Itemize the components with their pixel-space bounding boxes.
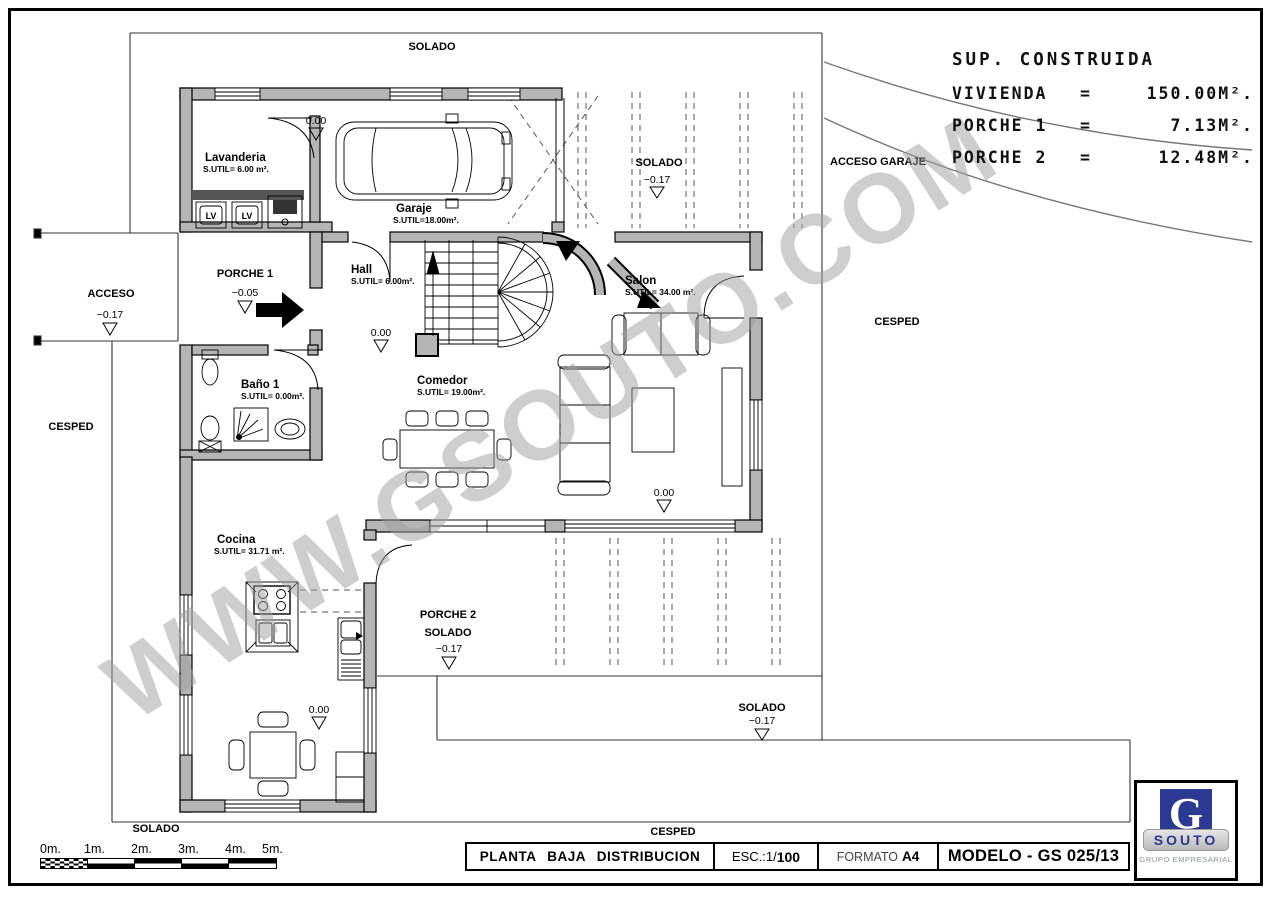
room-label-bano: Baño 1 bbox=[241, 379, 280, 391]
summary-row-porche2: PORCHE 2 = 12.48M². bbox=[952, 148, 1254, 167]
bathroom-fixtures bbox=[199, 350, 305, 452]
label-porche2-solado: SOLADO bbox=[424, 627, 472, 639]
level-ramp: −0.17 bbox=[644, 174, 671, 186]
summary-title: SUP. CONSTRUIDA bbox=[952, 50, 1254, 70]
level-porche1: −0.05 bbox=[232, 287, 259, 299]
summary-value: 12.48M². bbox=[1106, 148, 1254, 167]
label-washer-1: LV bbox=[206, 211, 217, 221]
summary-value: 7.13M². bbox=[1106, 116, 1254, 135]
summary-row-vivienda: VIVIENDA = 150.00M². bbox=[952, 84, 1254, 103]
room-label-comedor: Comedor bbox=[417, 375, 468, 387]
area-label-salon: S.UTIL= 34.00 m². bbox=[625, 287, 696, 297]
scale-segment bbox=[182, 859, 229, 868]
doors bbox=[268, 118, 744, 583]
level-acceso: −0.17 bbox=[97, 309, 124, 321]
scale-tick: 3m. bbox=[178, 842, 199, 856]
label-solado-top: SOLADO bbox=[408, 41, 456, 53]
level-cocina: 0.00 bbox=[309, 704, 330, 716]
format-cell: FORMATOA4 bbox=[819, 844, 939, 869]
label-cesped-right: CESPED bbox=[874, 316, 919, 328]
scale-value: 100 bbox=[777, 849, 800, 865]
room-label-hall: Hall bbox=[351, 264, 372, 276]
equals-sign: = bbox=[1080, 116, 1106, 135]
area-label-comedor: S.UTIL= 19.00m². bbox=[417, 387, 485, 397]
level-solado-br: −0.17 bbox=[749, 715, 776, 727]
company-logo: G SOUTO GRUPO EMPRESARIAL bbox=[1134, 780, 1238, 881]
area-label-lavanderia: S.UTIL= 6.00 m². bbox=[203, 164, 269, 174]
area-summary: SUP. CONSTRUIDA VIVIENDA = 150.00M². POR… bbox=[952, 50, 1254, 180]
scale-bar: 0m. 1m. 2m. 3m. 4m. 5m. bbox=[40, 842, 276, 868]
label-solado-ramp: SOLADO bbox=[635, 157, 683, 169]
title-block: PLANTA BAJA DISTRIBUCION ESC.:1/100 FORM… bbox=[465, 842, 1130, 871]
summary-row-porche1: PORCHE 1 = 7.13M². bbox=[952, 116, 1254, 135]
label-porche2: PORCHE 2 bbox=[420, 609, 476, 621]
format-label: FORMATO bbox=[837, 850, 898, 864]
summary-label: PORCHE 2 bbox=[952, 148, 1080, 167]
stairs bbox=[416, 237, 553, 356]
scale-segment bbox=[135, 859, 182, 868]
car bbox=[336, 114, 512, 208]
scale-tick: 4m. bbox=[225, 842, 246, 856]
scale-label: ESC.:1/ bbox=[732, 849, 777, 864]
drawing-title: PLANTA BAJA DISTRIBUCION bbox=[467, 844, 715, 869]
area-label-cocina: S.UTIL= 31.71 m². bbox=[214, 546, 285, 556]
room-label-cocina: Cocina bbox=[217, 534, 256, 546]
logo-name: SOUTO bbox=[1143, 829, 1229, 851]
scale-tick: 2m. bbox=[131, 842, 152, 856]
label-cesped-bottom: CESPED bbox=[650, 826, 695, 838]
label-solado-left: SOLADO bbox=[132, 823, 180, 835]
summary-label: VIVIENDA bbox=[952, 84, 1080, 103]
scale-segment bbox=[88, 859, 135, 868]
drawing-sheet: SOLADO Lavanderia S.UTIL= 6.00 m². Garaj… bbox=[0, 0, 1273, 900]
scale-tick: 0m. bbox=[40, 842, 61, 856]
living-furniture bbox=[558, 313, 742, 495]
entrance-arrow-icon bbox=[256, 292, 304, 328]
area-label-hall: S.UTIL= 6.00m². bbox=[351, 276, 415, 286]
room-label-lavanderia: Lavanderia bbox=[205, 152, 266, 164]
label-acceso-garaje: ACCESO GARAJE bbox=[830, 156, 926, 168]
kitchen-fixtures bbox=[229, 582, 364, 802]
area-label-garaje: S.UTIL=18.00m². bbox=[393, 215, 459, 225]
label-washer-2: LV bbox=[242, 211, 253, 221]
scale-segment bbox=[41, 859, 88, 868]
room-label-salon: Salon bbox=[625, 275, 656, 287]
garage-door bbox=[556, 98, 564, 222]
scale-tick: 5m. bbox=[262, 842, 283, 856]
equals-sign: = bbox=[1080, 84, 1106, 103]
scale-bar-segments bbox=[40, 858, 277, 869]
label-cesped-left: CESPED bbox=[48, 421, 93, 433]
label-acceso: ACCESO bbox=[87, 288, 135, 300]
level-garaje: 0.00 bbox=[306, 115, 327, 127]
scale-segment bbox=[229, 859, 276, 868]
level-hall: 0.00 bbox=[371, 327, 392, 339]
level-salon: 0.00 bbox=[654, 487, 675, 499]
logo-tagline: GRUPO EMPRESARIAL bbox=[1137, 855, 1235, 864]
curved-stair-wall bbox=[543, 238, 661, 308]
dining-furniture bbox=[383, 411, 511, 487]
label-solado-br: SOLADO bbox=[738, 702, 786, 714]
room-label-garaje: Garaje bbox=[396, 203, 432, 215]
scale-bar-labels: 0m. 1m. 2m. 3m. 4m. 5m. bbox=[40, 842, 276, 857]
equals-sign: = bbox=[1080, 148, 1106, 167]
format-value: A4 bbox=[902, 849, 919, 864]
label-porche1: PORCHE 1 bbox=[217, 268, 273, 280]
scale-cell: ESC.:1/100 bbox=[715, 844, 819, 869]
summary-value: 150.00M². bbox=[1106, 84, 1254, 103]
area-label-bano: S.UTIL= 0.00m². bbox=[241, 391, 305, 401]
model-cell: MODELO - GS 025/13 bbox=[939, 844, 1128, 869]
scale-tick: 1m. bbox=[84, 842, 105, 856]
level-porche2: −0.17 bbox=[436, 643, 463, 655]
summary-label: PORCHE 1 bbox=[952, 116, 1080, 135]
